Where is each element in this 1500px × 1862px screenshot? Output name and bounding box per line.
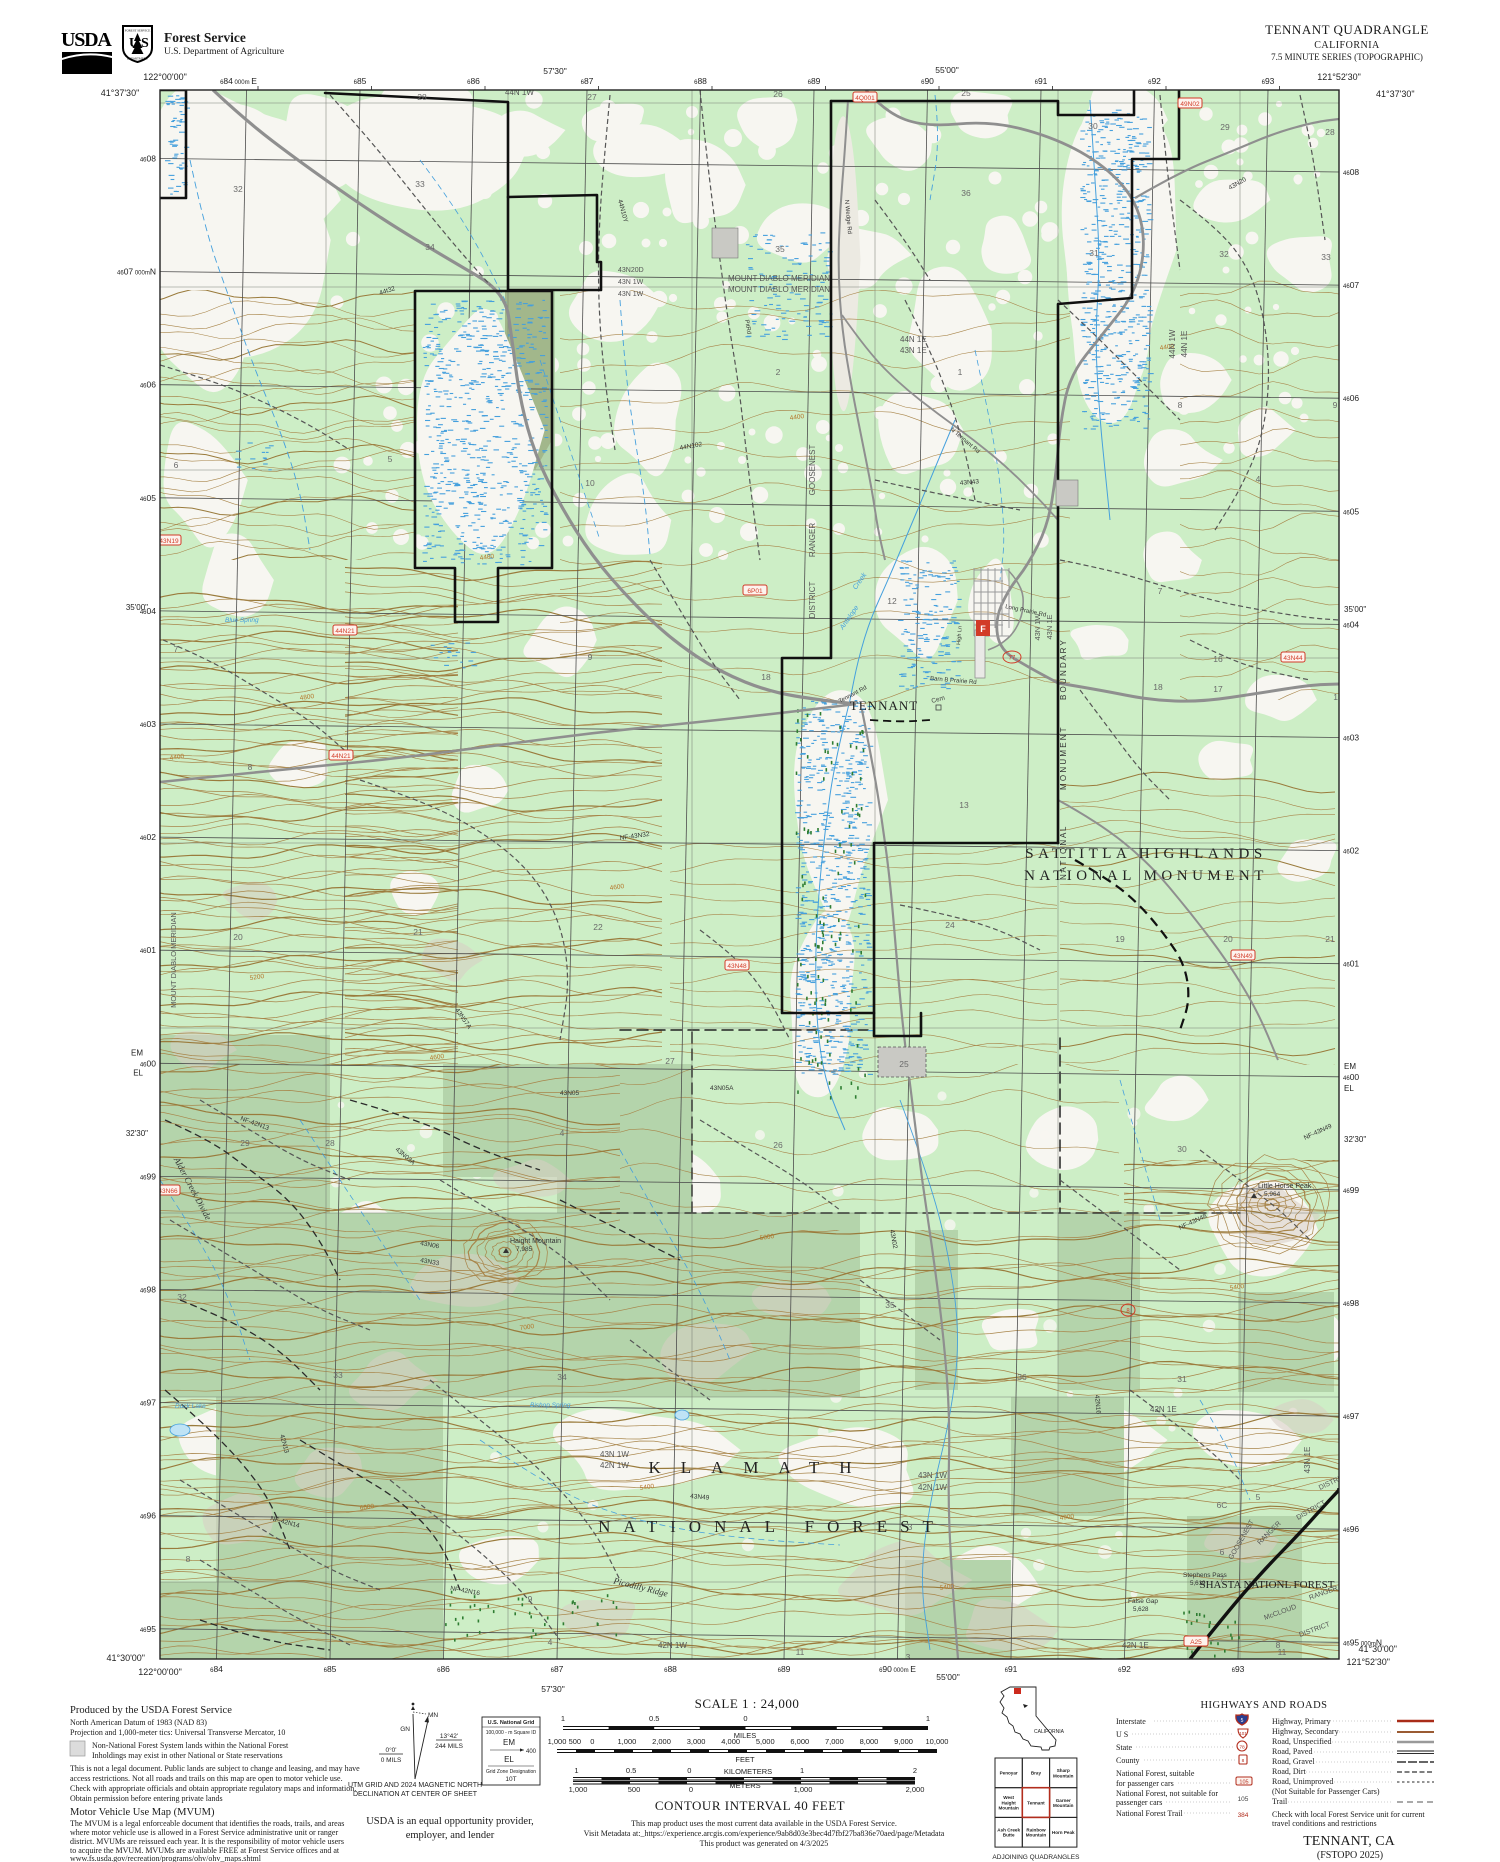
svg-text:500: 500	[628, 1785, 641, 1794]
svg-text:2: 2	[913, 1766, 917, 1775]
svg-text:Trail: Trail	[1272, 1797, 1288, 1806]
svg-text:CALIFORNIA: CALIFORNIA	[1314, 40, 1380, 51]
svg-text:A25: A25	[1190, 1639, 1202, 1646]
svg-text:Blue Spring: Blue Spring	[225, 617, 259, 624]
svg-text:4696: 4696	[140, 1511, 156, 1521]
svg-text:MN: MN	[428, 1712, 438, 1719]
svg-text:DECLINATION AT CENTER OF SHEET: DECLINATION AT CENTER OF SHEET	[353, 1791, 478, 1798]
svg-text:9: 9	[1333, 400, 1338, 410]
svg-text:30: 30	[1088, 121, 1098, 131]
svg-text:4695: 4695	[140, 1624, 156, 1634]
svg-text:32'30": 32'30"	[1344, 1135, 1366, 1144]
svg-text:4698: 4698	[1343, 1298, 1359, 1308]
svg-text:16: 16	[1213, 654, 1223, 664]
svg-text:MOUNT DIABLO MERIDIAN: MOUNT DIABLO MERIDIAN	[169, 912, 178, 1008]
svg-text:35: 35	[775, 244, 785, 254]
svg-text:686: 686	[467, 76, 480, 86]
svg-text:7: 7	[1158, 586, 1163, 596]
svg-text:This product was generated on: This product was generated on 4/3/2025	[700, 1839, 829, 1848]
svg-text:20: 20	[1223, 934, 1233, 944]
svg-text:EL: EL	[1344, 1084, 1354, 1093]
svg-text:where motor vehicle use is all: where motor vehicle use is allowed in a …	[70, 1828, 338, 1837]
svg-text:36: 36	[1017, 1372, 1027, 1382]
svg-text:Penoyar: Penoyar	[1000, 1771, 1018, 1776]
svg-text:690 000m E: 690 000m E	[879, 1664, 916, 1674]
svg-text:This is not a legal document.: This is not a legal document. Public lan…	[70, 1764, 360, 1773]
svg-text:5: 5	[388, 454, 393, 464]
svg-text:Highway, Secondary: Highway, Secondary	[1272, 1727, 1339, 1736]
svg-text:43N 1W: 43N 1W	[600, 1450, 629, 1459]
svg-text:19: 19	[1115, 934, 1125, 944]
svg-text:4606: 4606	[140, 380, 156, 390]
svg-text:4600: 4600	[140, 1058, 156, 1068]
svg-text:7: 7	[174, 644, 179, 654]
svg-text:28: 28	[1325, 127, 1335, 137]
svg-text:U.S. Department of Agriculture: U.S. Department of Agriculture	[164, 46, 284, 57]
svg-text:EM: EM	[131, 1048, 143, 1057]
svg-text:20: 20	[233, 932, 243, 942]
svg-text:43N66: 43N66	[158, 1188, 178, 1195]
svg-text:4699: 4699	[1343, 1185, 1359, 1195]
svg-text:MOUNT DIABLO MERIDIAN: MOUNT DIABLO MERIDIAN	[728, 285, 830, 294]
svg-text:43N 1W: 43N 1W	[918, 1471, 947, 1480]
svg-text:Road, Unimproved: Road, Unimproved	[1272, 1777, 1333, 1786]
svg-text:9: 9	[588, 652, 593, 662]
svg-text:GOOSENEST: GOOSENEST	[808, 445, 817, 496]
svg-text:41°30'00": 41°30'00"	[106, 1653, 145, 1663]
svg-text:3: 3	[906, 1652, 911, 1662]
svg-text:4607 000mN: 4607 000mN	[117, 267, 156, 277]
svg-text:4602: 4602	[140, 832, 156, 842]
svg-text:17: 17	[1213, 684, 1223, 694]
svg-text:KLAMATH: KLAMATH	[648, 1458, 871, 1477]
svg-text:U S: U S	[1116, 1730, 1128, 1739]
svg-text:8,000: 8,000	[860, 1737, 879, 1746]
svg-text:10,000: 10,000	[926, 1737, 949, 1746]
svg-text:4608: 4608	[1343, 167, 1359, 177]
svg-text:1,000: 1,000	[618, 1737, 637, 1746]
svg-text:44N 1E: 44N 1E	[1180, 331, 1189, 358]
svg-text:M O N U M E N T: M O N U M E N T	[1059, 727, 1068, 790]
svg-text:5,619: 5,619	[1190, 1580, 1206, 1587]
svg-text:NATIONAL MONUMENT: NATIONAL MONUMENT	[1024, 868, 1268, 884]
svg-text:S: S	[141, 36, 149, 51]
svg-text:32: 32	[177, 1292, 187, 1302]
svg-text:7,000: 7,000	[825, 1737, 844, 1746]
svg-text:Road, Paved: Road, Paved	[1272, 1747, 1312, 1756]
svg-text:8: 8	[248, 762, 253, 772]
svg-text:district. MVUMs are reissued e: district. MVUMs are reissued each year. …	[70, 1837, 344, 1846]
svg-text:Haight Mountain: Haight Mountain	[510, 1238, 561, 1245]
svg-text:42N 1W: 42N 1W	[600, 1461, 629, 1470]
svg-text:ADJOINING QUADRANGLES: ADJOINING QUADRANGLES	[992, 1854, 1080, 1861]
svg-text:685: 685	[354, 76, 367, 86]
svg-text:692: 692	[1118, 1664, 1131, 1674]
svg-text:Road, Gravel: Road, Gravel	[1272, 1757, 1315, 1766]
svg-text:1: 1	[800, 1766, 804, 1775]
svg-text:TENNANT, CA: TENNANT, CA	[1303, 1834, 1395, 1849]
svg-text:693: 693	[1262, 76, 1275, 86]
svg-text:691: 691	[1035, 76, 1048, 86]
svg-text:(FSTOPO 2025): (FSTOPO 2025)	[1317, 1850, 1383, 1861]
svg-text:44N 1E: 44N 1E	[900, 335, 927, 344]
svg-text:44N 1W: 44N 1W	[1168, 329, 1177, 358]
svg-text:EM: EM	[1344, 1062, 1356, 1071]
svg-text:42N 1E: 42N 1E	[1150, 1405, 1177, 1414]
svg-text:EL: EL	[133, 1068, 143, 1077]
svg-text:33: 33	[1321, 252, 1331, 262]
svg-text:100,000 - m Square ID: 100,000 - m Square ID	[486, 1730, 537, 1736]
svg-text:Produced by the USDA Forest Se: Produced by the USDA Forest Service	[70, 1705, 232, 1716]
svg-text:4: 4	[1256, 474, 1261, 484]
svg-text:55'00": 55'00"	[935, 65, 959, 75]
svg-text:4698: 4698	[140, 1285, 156, 1295]
svg-text:Butte: Butte	[1003, 1833, 1015, 1838]
svg-text:384: 384	[1238, 1812, 1249, 1819]
svg-text:41°37'30": 41°37'30"	[101, 88, 140, 98]
svg-text:11: 11	[1278, 1647, 1287, 1657]
svg-text:DEPARTMENT: DEPARTMENT	[127, 57, 148, 61]
svg-text:121°52'30": 121°52'30"	[1346, 1657, 1390, 1667]
svg-text:County: County	[1116, 1756, 1140, 1765]
svg-text:693: 693	[1232, 1664, 1245, 1674]
svg-text:Horn Peak: Horn Peak	[1052, 1830, 1075, 1835]
svg-text:for passenger cars: for passenger cars	[1116, 1779, 1174, 1788]
svg-text:13: 13	[959, 800, 969, 810]
svg-text:692: 692	[1148, 76, 1161, 86]
svg-text:MOUNT DIABLO MERIDIAN: MOUNT DIABLO MERIDIAN	[728, 274, 830, 283]
svg-text:Mountain: Mountain	[1053, 1803, 1074, 1808]
svg-text:31: 31	[1089, 248, 1099, 258]
svg-text:8: 8	[1242, 1758, 1245, 1764]
svg-text:Road, Unspecified: Road, Unspecified	[1272, 1737, 1332, 1746]
svg-text:29: 29	[1220, 122, 1230, 132]
svg-text:9,000: 9,000	[894, 1737, 913, 1746]
svg-text:4603: 4603	[140, 719, 156, 729]
svg-text:30: 30	[1177, 1144, 1187, 1154]
svg-text:National Forest, suitable: National Forest, suitable	[1116, 1769, 1195, 1778]
svg-text:28: 28	[325, 1138, 335, 1148]
svg-text:6P01: 6P01	[747, 588, 763, 595]
svg-text:1: 1	[574, 1766, 578, 1775]
svg-text:33: 33	[333, 1370, 343, 1380]
svg-text:43N 1W: 43N 1W	[618, 279, 644, 286]
svg-text:29: 29	[240, 1138, 250, 1148]
svg-text:2: 2	[776, 367, 781, 377]
svg-text:35'00": 35'00"	[1344, 605, 1366, 614]
svg-text:0.5: 0.5	[626, 1766, 636, 1775]
svg-text:employer, and lender: employer, and lender	[406, 1830, 495, 1841]
svg-text:18: 18	[1153, 682, 1163, 692]
svg-text:4695 000mN: 4695 000mN	[1343, 1637, 1382, 1647]
svg-text:244 MILS: 244 MILS	[435, 1743, 463, 1750]
svg-text:8: 8	[1178, 400, 1183, 410]
svg-text:Non-National Forest System lan: Non-National Forest System lands within …	[92, 1741, 289, 1750]
svg-text:689: 689	[808, 76, 821, 86]
svg-text:1: 1	[561, 1714, 565, 1723]
svg-text:Highway, Primary: Highway, Primary	[1272, 1717, 1331, 1726]
svg-text:31: 31	[1177, 1374, 1187, 1384]
svg-text:57'30": 57'30"	[541, 1684, 565, 1694]
svg-text:0°0': 0°0'	[385, 1746, 396, 1754]
svg-text:FEET: FEET	[735, 1755, 755, 1764]
svg-text:688: 688	[694, 76, 707, 86]
svg-text:1,000: 1,000	[569, 1785, 588, 1794]
svg-text:8: 8	[186, 1554, 191, 1564]
svg-text:500: 500	[569, 1737, 582, 1746]
svg-text:4605: 4605	[140, 493, 156, 503]
svg-text:43N 1W: 43N 1W	[618, 291, 644, 298]
svg-text:34: 34	[557, 1372, 567, 1382]
svg-text:The MVUM is a legal enforceabl: The MVUM is a legal enforceable document…	[70, 1819, 344, 1828]
svg-text:43N 1E: 43N 1E	[1303, 1447, 1312, 1474]
svg-text:4699: 4699	[140, 1171, 156, 1181]
svg-text:43N05A: 43N05A	[710, 1085, 734, 1092]
svg-text:Mountain: Mountain	[998, 1806, 1019, 1811]
svg-text:Road, Dirt: Road, Dirt	[1272, 1767, 1307, 1776]
svg-text:43N19: 43N19	[159, 538, 179, 545]
svg-text:1: 1	[958, 367, 963, 377]
svg-text:43N49: 43N49	[1233, 953, 1253, 960]
svg-text:Check with local Forest Servic: Check with local Forest Service unit for…	[1272, 1810, 1425, 1819]
svg-text:43N05: 43N05	[560, 1090, 580, 1097]
svg-text:Check with appropriate officia: Check with appropriate officials and obt…	[70, 1784, 356, 1793]
svg-text:2,000: 2,000	[906, 1785, 925, 1794]
svg-text:4606: 4606	[1343, 393, 1359, 403]
svg-text:10T: 10T	[505, 1776, 516, 1783]
svg-text:4604: 4604	[1343, 619, 1359, 629]
svg-text:29: 29	[1339, 1147, 1349, 1157]
svg-text:77: 77	[1009, 656, 1016, 662]
svg-text:18: 18	[761, 672, 771, 682]
svg-text:44N21: 44N21	[335, 628, 355, 635]
svg-text:Duck Lake: Duck Lake	[175, 1403, 206, 1410]
svg-text:21: 21	[413, 927, 423, 937]
svg-text:KILOMETERS: KILOMETERS	[724, 1767, 772, 1776]
svg-text:43N 1E: 43N 1E	[900, 346, 927, 355]
svg-text:7.5 MINUTE SERIES (TOPOGRAPHIC: 7.5 MINUTE SERIES (TOPOGRAPHIC)	[1271, 52, 1423, 62]
svg-text:2,000: 2,000	[652, 1737, 671, 1746]
svg-text:78: 78	[1239, 1745, 1245, 1751]
svg-text:688: 688	[664, 1664, 677, 1674]
svg-text:Motor Vehicle Use Map (MVUM): Motor Vehicle Use Map (MVUM)	[70, 1807, 215, 1818]
svg-text:33: 33	[415, 179, 425, 189]
svg-text:4696: 4696	[1343, 1524, 1359, 1534]
svg-text:24: 24	[945, 920, 955, 930]
svg-text:22: 22	[593, 922, 603, 932]
svg-text:Forest Service: Forest Service	[164, 30, 246, 45]
svg-text:TENNANT: TENNANT	[850, 698, 918, 713]
svg-text:access restrictions. Not all r: access restrictions. Not all roads and t…	[70, 1774, 343, 1783]
svg-text:42N 1W: 42N 1W	[918, 1483, 947, 1492]
svg-text:Interstate: Interstate	[1116, 1717, 1146, 1726]
svg-text:4608: 4608	[140, 154, 156, 164]
svg-text:Tennant: Tennant	[1027, 1800, 1045, 1805]
svg-text:USDA: USDA	[61, 29, 112, 51]
svg-text:SATTITLA HIGHLANDS: SATTITLA HIGHLANDS	[1025, 846, 1266, 862]
svg-text:3: 3	[908, 1522, 913, 1532]
svg-text:686: 686	[437, 1664, 450, 1674]
svg-text:5,628: 5,628	[1133, 1606, 1149, 1613]
svg-text:12: 12	[887, 596, 897, 606]
svg-text:4605: 4605	[1343, 506, 1359, 516]
svg-text:passenger cars: passenger cars	[1116, 1798, 1162, 1807]
svg-text:43N48: 43N48	[727, 963, 747, 970]
svg-text:684: 684	[210, 1664, 223, 1674]
svg-text:26: 26	[773, 1140, 783, 1150]
svg-text:Little Horse Peak: Little Horse Peak	[1258, 1183, 1312, 1190]
svg-text:13°42': 13°42'	[440, 1732, 458, 1740]
svg-text:DISTRICT: DISTRICT	[808, 581, 817, 618]
svg-text:32: 32	[1219, 249, 1229, 259]
svg-text:105: 105	[1238, 1796, 1249, 1803]
svg-text:35: 35	[885, 1300, 895, 1310]
svg-text:36: 36	[961, 188, 971, 198]
svg-text:(Not Suitable for Passenger Ca: (Not Suitable for Passenger Cars)	[1272, 1787, 1380, 1796]
svg-text:690: 690	[921, 76, 934, 86]
svg-text:HIGHWAYS AND ROADS: HIGHWAYS AND ROADS	[1200, 1700, 1327, 1711]
svg-text:41°37'30": 41°37'30"	[1376, 89, 1415, 99]
svg-text:10: 10	[585, 478, 595, 488]
svg-text:EL: EL	[504, 1755, 514, 1764]
svg-text:15: 15	[1333, 692, 1343, 702]
svg-text:7,985: 7,985	[516, 1246, 533, 1253]
svg-text:34: 34	[425, 242, 435, 252]
svg-text:4697: 4697	[1343, 1411, 1359, 1421]
svg-text:4601: 4601	[1343, 959, 1359, 969]
svg-text:CALIFORNIA: CALIFORNIA	[1034, 1729, 1065, 1735]
svg-text:32'30": 32'30"	[126, 1129, 148, 1138]
svg-text:684 000m E: 684 000m E	[220, 76, 257, 86]
svg-text:U.S. National Grid: U.S. National Grid	[488, 1720, 535, 1726]
svg-text:FOREST SERVICE: FOREST SERVICE	[125, 29, 151, 33]
svg-text:42N 1W: 42N 1W	[658, 1641, 687, 1650]
svg-text:EM: EM	[503, 1738, 515, 1747]
svg-text:USDA is an equal opportunity p: USDA is an equal opportunity provider,	[366, 1816, 534, 1827]
svg-text:43N 1E: 43N 1E	[1045, 614, 1054, 639]
svg-text:0: 0	[687, 1766, 691, 1775]
svg-text:TENNANT QUADRANGLE: TENNANT QUADRANGLE	[1265, 22, 1429, 37]
svg-text:122°00'00": 122°00'00"	[143, 72, 187, 82]
svg-text:6: 6	[1220, 1547, 1225, 1557]
svg-text:28: 28	[417, 92, 427, 102]
svg-text:687: 687	[581, 76, 594, 86]
svg-text:5: 5	[1241, 1718, 1244, 1724]
svg-text:400: 400	[526, 1749, 537, 1755]
svg-text:1: 1	[926, 1714, 930, 1723]
svg-text:www.fs.usda.gov/recreation/pro: www.fs.usda.gov/recreation/programs/ohv/…	[70, 1854, 262, 1862]
svg-text:4602: 4602	[1343, 846, 1359, 856]
svg-text:4Q001: 4Q001	[855, 95, 875, 102]
svg-text:Bishop Spring: Bishop Spring	[530, 1402, 571, 1409]
svg-text:32: 32	[233, 184, 243, 194]
svg-text:1,000: 1,000	[794, 1785, 813, 1794]
svg-text:27: 27	[665, 1056, 675, 1066]
svg-text:4,000: 4,000	[721, 1737, 740, 1746]
svg-text:4: 4	[548, 1637, 553, 1647]
svg-text:4: 4	[560, 1128, 565, 1138]
svg-text:4600: 4600	[1343, 1072, 1359, 1082]
svg-text:27: 27	[587, 92, 597, 102]
svg-text:0: 0	[689, 1785, 693, 1794]
svg-text:49N02: 49N02	[1180, 101, 1200, 108]
svg-text:National Forest, not suitable: National Forest, not suitable for	[1116, 1789, 1218, 1798]
svg-text:4697: 4697	[140, 1398, 156, 1408]
svg-text:9: 9	[528, 1594, 533, 1604]
svg-text:Inholdings may exist in other: Inholdings may exist in other National o…	[92, 1751, 283, 1760]
svg-text:GN: GN	[400, 1726, 410, 1733]
svg-text:42N 1E: 42N 1E	[1122, 1641, 1149, 1650]
svg-text:4603: 4603	[1343, 733, 1359, 743]
svg-text:State: State	[1116, 1743, 1132, 1752]
svg-text:SCALE 1 : 24,000: SCALE 1 : 24,000	[695, 1696, 800, 1711]
svg-text:105: 105	[1239, 1780, 1248, 1786]
svg-text:Bray: Bray	[1031, 1771, 1042, 1776]
svg-text:7: 7	[1220, 1574, 1225, 1584]
svg-text:False Gap: False Gap	[1128, 1598, 1158, 1605]
svg-text:CONTOUR INTERVAL 40 FEET: CONTOUR INTERVAL 40 FEET	[655, 1798, 845, 1813]
svg-text:5,964: 5,964	[1264, 1191, 1281, 1198]
svg-text:Mountain: Mountain	[1053, 1773, 1074, 1778]
svg-text:0.5: 0.5	[649, 1714, 659, 1723]
svg-text:Obtain permission before enter: Obtain permission before entering privat…	[70, 1794, 223, 1803]
svg-text:43N20D: 43N20D	[618, 267, 644, 274]
svg-text:687: 687	[551, 1664, 564, 1674]
svg-text:0: 0	[590, 1737, 594, 1746]
svg-text:3,000: 3,000	[687, 1737, 706, 1746]
svg-text:121°52'30": 121°52'30"	[1317, 72, 1361, 82]
svg-text:Projection and 1,000-meter tic: Projection and 1,000-meter tics: Univers…	[70, 1728, 285, 1737]
svg-text:This map product uses the most: This map product uses the most current d…	[631, 1819, 897, 1828]
svg-text:Visit Metadata at:_https://exp: Visit Metadata at:_https://experience.ar…	[584, 1829, 945, 1838]
svg-text:691: 691	[1005, 1664, 1018, 1674]
svg-text:6,000: 6,000	[790, 1737, 809, 1746]
svg-text:101: 101	[1239, 1731, 1247, 1736]
svg-text:685: 685	[324, 1664, 337, 1674]
svg-text:NATIONAL FOREST: NATIONAL FOREST	[598, 1517, 946, 1536]
svg-text:44N21: 44N21	[331, 753, 351, 760]
svg-text:43N44: 43N44	[1283, 655, 1303, 662]
svg-text:B O U N D A R Y: B O U N D A R Y	[1059, 639, 1068, 700]
svg-text:1,000: 1,000	[548, 1737, 567, 1746]
svg-text:4601: 4601	[140, 945, 156, 955]
svg-text:5,000: 5,000	[756, 1737, 775, 1746]
svg-text:25: 25	[899, 1059, 909, 1069]
svg-text:Grid Zone Designation: Grid Zone Designation	[486, 1769, 536, 1775]
svg-text:RANGER: RANGER	[808, 523, 817, 557]
svg-text:6C: 6C	[1217, 1500, 1228, 1510]
svg-text:travel conditions and restrict: travel conditions and restrictions	[1272, 1819, 1377, 1828]
svg-text:689: 689	[778, 1664, 791, 1674]
svg-text:National Forest Trail: National Forest Trail	[1116, 1809, 1183, 1818]
svg-text:Mountain: Mountain	[1026, 1833, 1047, 1838]
svg-text:North American Datum of 1983 (: North American Datum of 1983 (NAD 83)	[70, 1718, 207, 1727]
svg-text:0 MILS: 0 MILS	[381, 1757, 402, 1764]
svg-text:4607: 4607	[1343, 280, 1359, 290]
svg-text:21: 21	[1325, 934, 1335, 944]
svg-text:6: 6	[174, 460, 179, 470]
svg-text:11: 11	[796, 1647, 805, 1657]
svg-text:32: 32	[1341, 1370, 1351, 1380]
svg-text:122°00'00": 122°00'00"	[138, 1667, 182, 1677]
svg-text:UTM GRID AND 2024 MAGNETIC NOR: UTM GRID AND 2024 MAGNETIC NORTH	[348, 1782, 482, 1789]
svg-text:0: 0	[743, 1714, 747, 1723]
svg-text:F: F	[980, 624, 986, 634]
svg-text:57'30": 57'30"	[543, 66, 567, 76]
svg-text:55'00": 55'00"	[936, 1672, 960, 1682]
svg-text:5: 5	[1256, 1492, 1261, 1502]
